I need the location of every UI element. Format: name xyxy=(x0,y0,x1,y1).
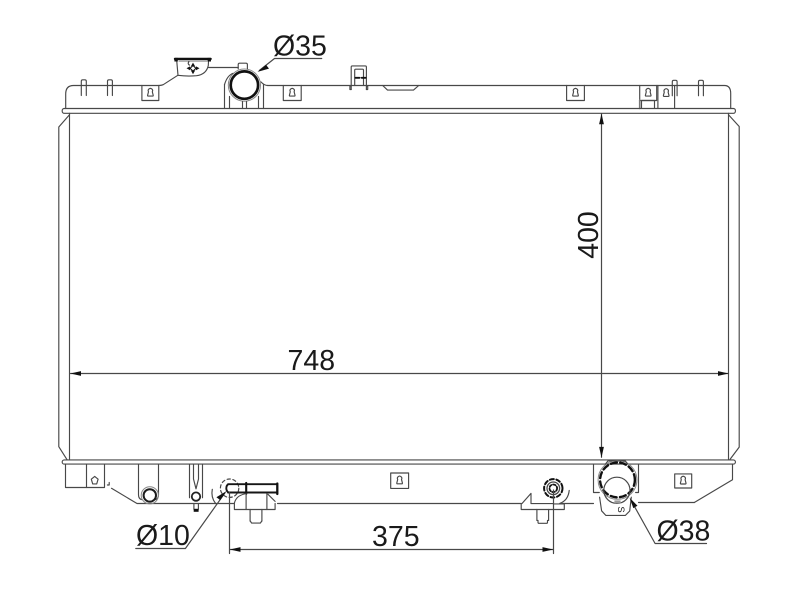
svg-text:Ø38: Ø38 xyxy=(657,516,711,548)
svg-text:748: 748 xyxy=(288,345,336,377)
svg-text:S: S xyxy=(615,506,626,512)
svg-text:Ø35: Ø35 xyxy=(273,31,327,63)
svg-text:400: 400 xyxy=(573,211,605,259)
svg-text:375: 375 xyxy=(372,521,420,553)
svg-text:Ø10: Ø10 xyxy=(136,520,190,552)
